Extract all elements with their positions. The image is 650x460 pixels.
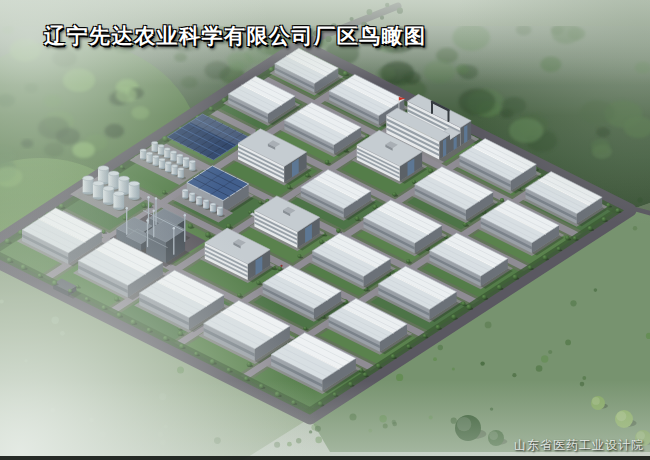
birdseye-rendering: 辽宁先达农业科学有限公司厂区鸟瞰图 山东省医药工业设计院 <box>0 0 650 460</box>
page-title: 辽宁先达农业科学有限公司厂区鸟瞰图 <box>44 22 604 50</box>
bottom-border <box>0 456 650 460</box>
fog-overlay <box>0 0 650 460</box>
credit-text: 山东省医药工业设计院 <box>514 437 644 454</box>
scene-canvas <box>0 0 650 460</box>
